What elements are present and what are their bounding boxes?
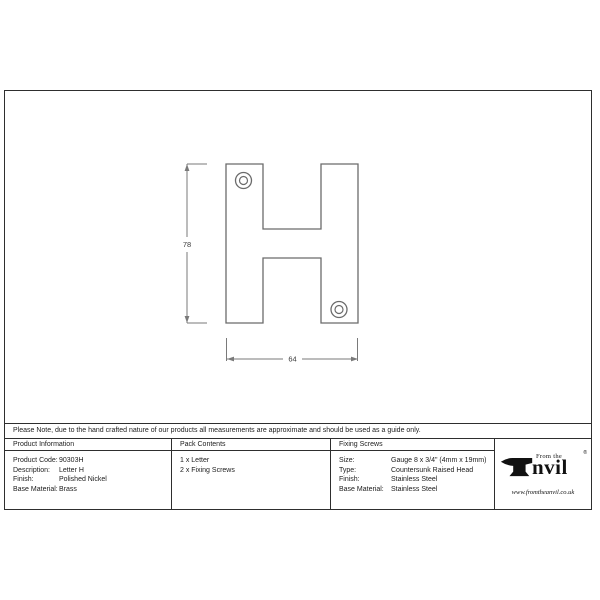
spec-value: Countersunk Raised Head bbox=[391, 466, 494, 476]
spec-label: Size: bbox=[339, 456, 391, 466]
spec-table: Product Information Product Code: 90303H… bbox=[5, 439, 591, 509]
logo-name-text: nvil bbox=[532, 457, 568, 478]
spec-label: Finish: bbox=[13, 475, 59, 485]
product-information-column: Product Information Product Code: 90303H… bbox=[5, 439, 172, 509]
letter-h-technical-drawing: 78 64 bbox=[5, 91, 591, 423]
fixing-screws-body: Size: Gauge 8 x 3/4" (4mm x 19mm) Type: … bbox=[331, 451, 494, 494]
pack-contents-header: Pack Contents bbox=[172, 439, 330, 451]
fixing-screws-column: Fixing Screws Size: Gauge 8 x 3/4" (4mm … bbox=[331, 439, 495, 509]
logo-website-text: www.fromtheanvil.co.uk bbox=[499, 489, 587, 496]
spec-row: Size: Gauge 8 x 3/4" (4mm x 19mm) bbox=[339, 456, 494, 466]
from-the-anvil-logo: From the nvil ® www.fromtheanvil.co.uk bbox=[499, 450, 587, 498]
spec-label: Description: bbox=[13, 466, 59, 476]
pack-contents-body: 1 x Letter 2 x Fixing Screws bbox=[172, 451, 330, 475]
spec-value: Letter H bbox=[59, 466, 171, 476]
spec-label: Base Material: bbox=[13, 485, 59, 495]
width-dimension-label: 64 bbox=[288, 355, 296, 364]
spec-label: Type: bbox=[339, 466, 391, 476]
spec-row: Base Material: Stainless Steel bbox=[339, 485, 494, 495]
disclaimer-note: Please Note, due to the hand crafted nat… bbox=[5, 423, 591, 439]
registered-trademark-icon: ® bbox=[583, 450, 587, 456]
spec-value: Stainless Steel bbox=[391, 485, 494, 495]
technical-drawing-area: 78 64 bbox=[5, 91, 591, 423]
fixing-screws-header: Fixing Screws bbox=[331, 439, 494, 451]
spec-row: Description: Letter H bbox=[13, 466, 171, 476]
anvil-icon bbox=[500, 455, 533, 480]
spec-row: Finish: Polished Nickel bbox=[13, 475, 171, 485]
spec-value: Polished Nickel bbox=[59, 475, 171, 485]
product-information-body: Product Code: 90303H Description: Letter… bbox=[5, 451, 171, 494]
pack-item: 1 x Letter bbox=[180, 456, 330, 466]
brand-logo-cell: From the nvil ® www.fromtheanvil.co.uk bbox=[495, 439, 591, 509]
spec-value: 90303H bbox=[59, 456, 171, 466]
datasheet-frame: 78 64 Please Note, due to the hand craft… bbox=[4, 90, 592, 510]
spec-value: Gauge 8 x 3/4" (4mm x 19mm) bbox=[391, 456, 494, 466]
spec-label: Base Material: bbox=[339, 485, 391, 495]
spec-row: Product Code: 90303H bbox=[13, 456, 171, 466]
spec-value: Stainless Steel bbox=[391, 475, 494, 485]
pack-contents-column: Pack Contents 1 x Letter 2 x Fixing Scre… bbox=[172, 439, 331, 509]
pack-item: 2 x Fixing Screws bbox=[180, 466, 330, 476]
product-information-header: Product Information bbox=[5, 439, 171, 451]
height-dimension-label: 78 bbox=[183, 240, 191, 249]
spec-row: Finish: Stainless Steel bbox=[339, 475, 494, 485]
spec-label: Finish: bbox=[339, 475, 391, 485]
spec-value: Brass bbox=[59, 485, 171, 495]
spec-row: Type: Countersunk Raised Head bbox=[339, 466, 494, 476]
spec-label: Product Code: bbox=[13, 456, 59, 466]
spec-row: Base Material: Brass bbox=[13, 485, 171, 495]
